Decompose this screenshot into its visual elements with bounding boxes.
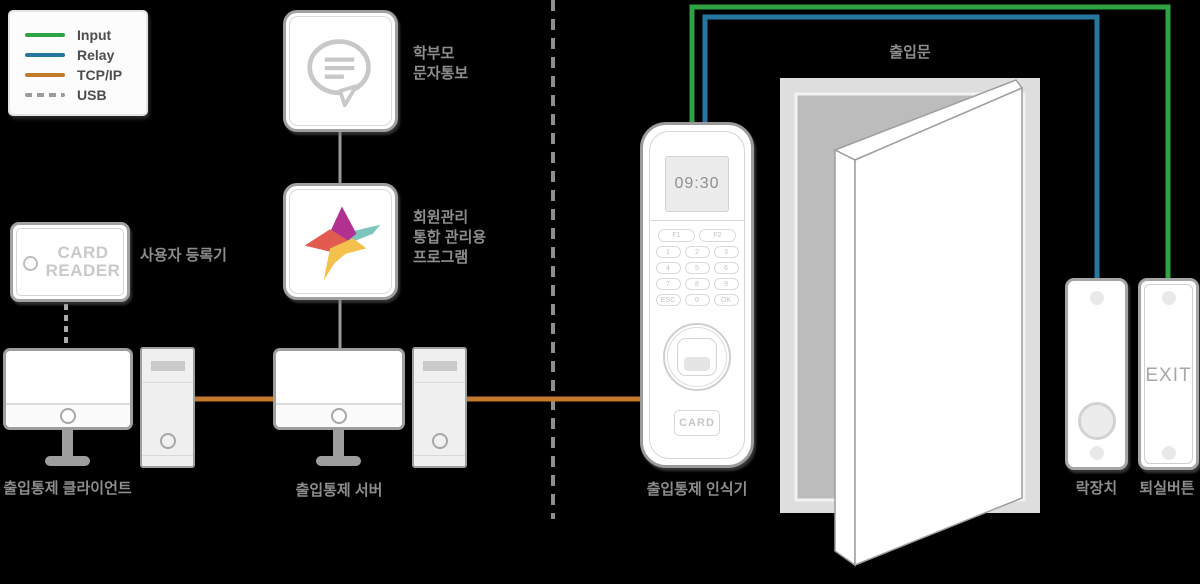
lock-label: 락장치 <box>1065 479 1128 499</box>
key-6: 6 <box>714 262 739 274</box>
legend-label-relay: Relay <box>77 47 114 63</box>
keypad-row-1: 1 2 3 <box>656 246 739 258</box>
legend-row-relay: Relay <box>25 45 146 65</box>
keypad-row-2: 4 5 6 <box>656 262 739 274</box>
parent-sms-label-line2: 문자통보 <box>413 64 468 84</box>
key-esc: ESC <box>656 294 681 306</box>
program-label-line2: 통합 관리용 <box>413 228 486 248</box>
server-monitor-bar <box>276 403 402 427</box>
client-monitor-stand <box>62 430 73 457</box>
keypad-row-4: ESC 0 OK <box>656 294 739 306</box>
server-tower-line2 <box>414 455 465 456</box>
key-ok: OK <box>714 294 739 306</box>
server-tower-vent <box>423 361 457 371</box>
key-f1: F1 <box>658 229 695 242</box>
server-label: 출입통제 서버 <box>273 481 405 501</box>
door-graphic <box>780 78 1040 565</box>
access-reader-device: 09:30 F1 F2 1 2 3 4 5 6 7 8 9 ESC 0 OK <box>640 122 754 468</box>
server-tower-button <box>432 433 448 449</box>
key-1: 1 <box>656 246 681 258</box>
wiring-layer <box>0 0 1200 584</box>
key-7: 7 <box>656 278 681 290</box>
client-tower-vent <box>151 361 185 371</box>
relay-line-swatch <box>25 53 65 57</box>
server-monitor-button <box>331 408 347 424</box>
parent-sms-label: 학부모 문자통보 <box>413 44 468 84</box>
client-tower <box>140 347 195 468</box>
client-tower-line2 <box>142 455 193 456</box>
key-0: 0 <box>685 294 710 306</box>
exit-label: 퇴실버튼 <box>1134 479 1200 499</box>
server-tower-line <box>414 382 465 383</box>
exit-screw-top <box>1162 291 1176 305</box>
server-monitor-base <box>316 456 361 466</box>
star-logo-icon <box>300 201 382 283</box>
usb-line-swatch <box>25 93 65 97</box>
access-reader-divider <box>650 220 744 221</box>
fingerprint-scanner <box>663 323 731 391</box>
card-reader-led <box>23 256 38 271</box>
door-front-edge <box>835 150 855 565</box>
client-monitor <box>3 348 133 430</box>
card-tap-area: CARD <box>674 410 720 436</box>
key-3: 3 <box>714 246 739 258</box>
key-4: 4 <box>656 262 681 274</box>
card-reader-text: CARD READER <box>39 244 127 280</box>
card-reader-label: 사용자 등록기 <box>140 246 227 266</box>
access-reader-keypad: F1 F2 1 2 3 4 5 6 7 8 9 ESC 0 OK <box>643 229 751 306</box>
exit-button-device: EXIT <box>1138 278 1199 470</box>
lock-button <box>1078 402 1116 440</box>
legend: Input Relay TCP/IP USB <box>8 10 148 116</box>
client-monitor-button <box>60 408 76 424</box>
input-line-swatch <box>25 33 65 37</box>
server-monitor-stand <box>333 430 344 457</box>
fingerprint-window <box>677 338 717 376</box>
speech-bubble-icon <box>301 35 381 107</box>
card-reader-text-line2: READER <box>39 262 127 280</box>
client-label: 출입통제 클라이언트 <box>0 479 145 499</box>
diagram-canvas: { "colors": { "input_green": "#2fa344", … <box>0 0 1200 584</box>
tcpip-line-swatch <box>25 73 65 77</box>
exit-screw-bottom <box>1162 446 1176 460</box>
key-f2: F2 <box>699 229 736 242</box>
door-panel <box>855 88 1022 565</box>
lock-screw-top <box>1090 291 1104 305</box>
legend-label-usb: USB <box>77 87 107 103</box>
client-tower-button <box>160 433 176 449</box>
legend-label-input: Input <box>77 27 111 43</box>
key-9: 9 <box>714 278 739 290</box>
lock-screw-bottom <box>1090 446 1104 460</box>
key-2: 2 <box>685 246 710 258</box>
fingerprint-pad <box>684 357 710 371</box>
parent-sms-node <box>283 10 398 132</box>
key-8: 8 <box>685 278 710 290</box>
key-5: 5 <box>685 262 710 274</box>
door-label: 출입문 <box>858 43 962 63</box>
lock-device <box>1065 278 1128 470</box>
program-node <box>283 183 398 300</box>
keypad-row-f: F1 F2 <box>658 229 736 242</box>
access-reader-label: 출입통제 인식기 <box>640 480 754 500</box>
legend-row-tcpip: TCP/IP <box>25 65 146 85</box>
card-reader-device: CARD READER <box>10 222 130 302</box>
client-monitor-base <box>45 456 90 466</box>
server-monitor <box>273 348 405 430</box>
keypad-row-3: 7 8 9 <box>656 278 739 290</box>
legend-row-usb: USB <box>25 85 146 105</box>
card-reader-text-line1: CARD <box>39 244 127 262</box>
client-monitor-bar <box>6 403 130 427</box>
program-label-line3: 프로그램 <box>413 248 486 268</box>
parent-sms-label-line1: 학부모 <box>413 44 468 64</box>
program-label: 회원관리 통합 관리용 프로그램 <box>413 208 486 268</box>
access-reader-display: 09:30 <box>665 156 729 212</box>
server-tower <box>412 347 467 468</box>
client-tower-line <box>142 382 193 383</box>
exit-text: EXIT <box>1141 365 1196 387</box>
legend-label-tcpip: TCP/IP <box>77 67 122 83</box>
program-label-line1: 회원관리 <box>413 208 486 228</box>
legend-row-input: Input <box>25 25 146 45</box>
